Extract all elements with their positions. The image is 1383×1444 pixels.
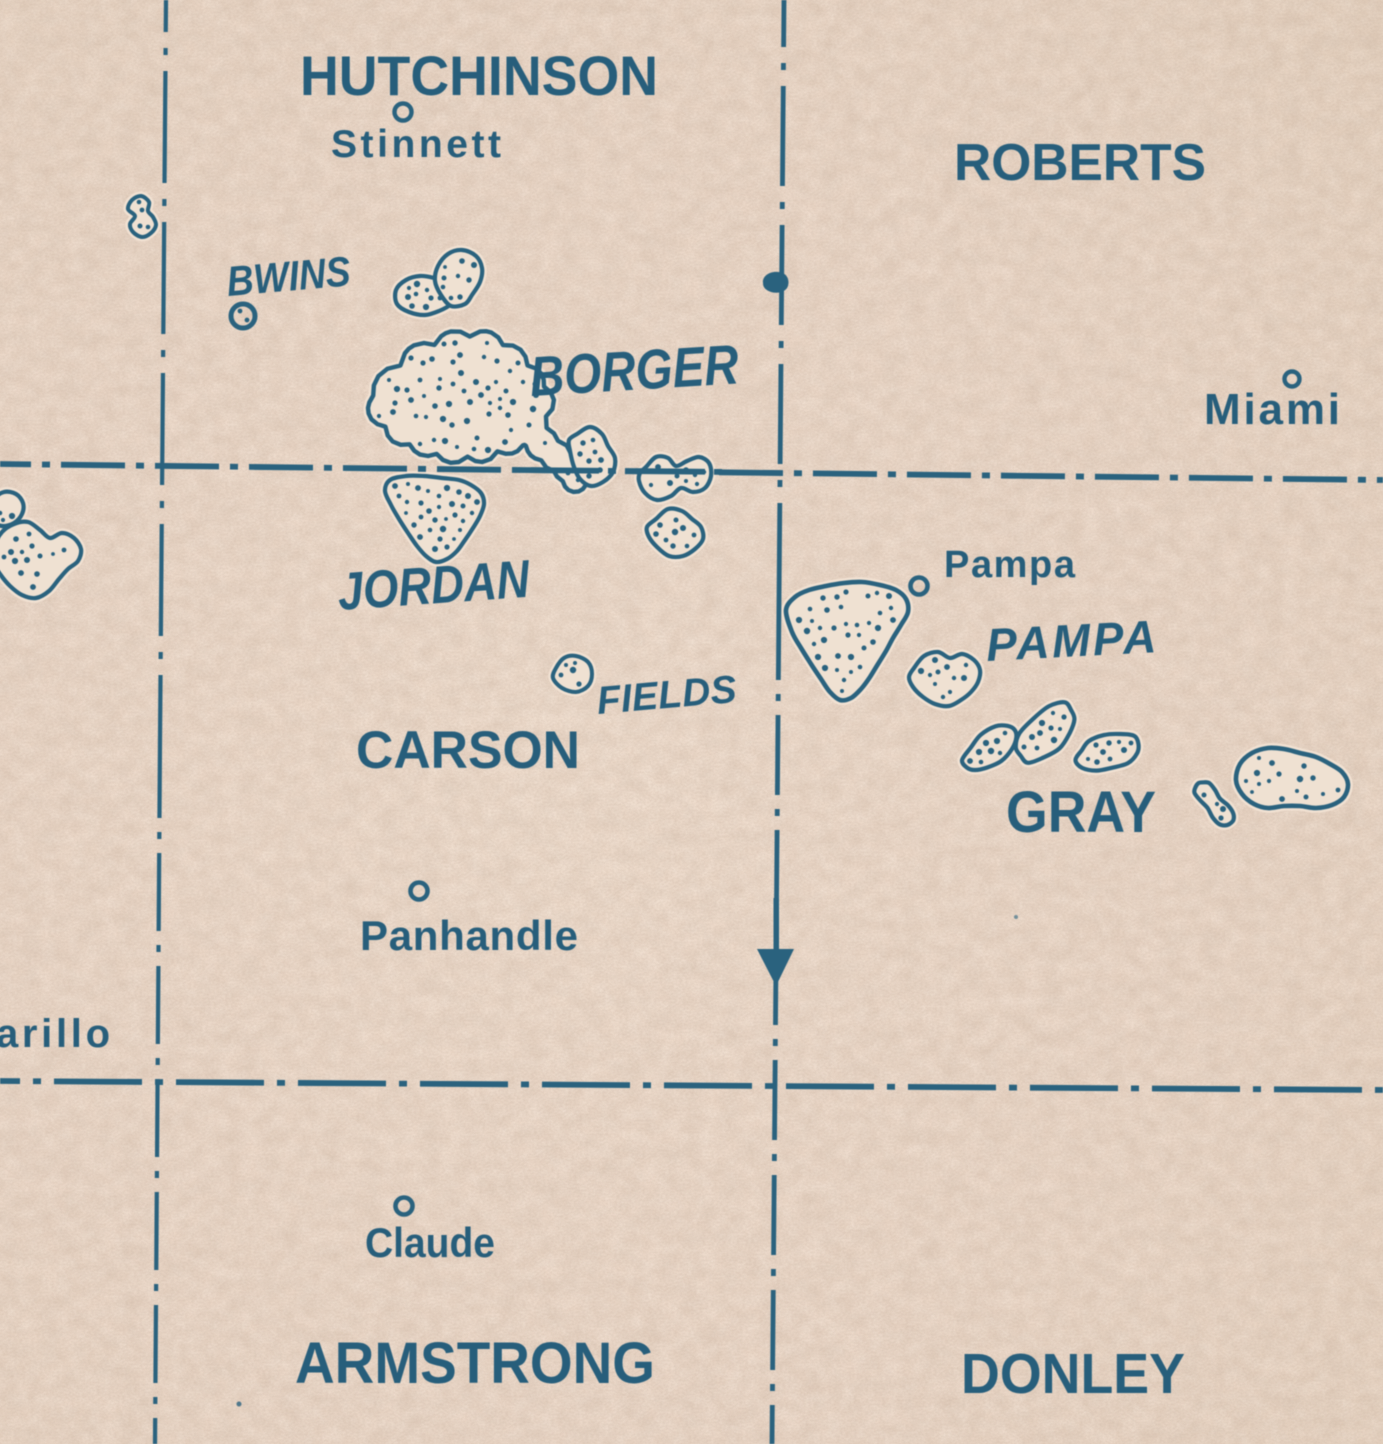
svg-text:PAMPA: PAMPA [985, 610, 1157, 671]
svg-text:arillo: arillo [0, 1012, 110, 1056]
svg-text:CARSON: CARSON [356, 721, 580, 780]
svg-text:Pampa: Pampa [944, 544, 1076, 586]
svg-text:BORGER: BORGER [528, 332, 741, 408]
svg-text:HUTCHINSON: HUTCHINSON [300, 44, 658, 107]
svg-text:DONLEY: DONLEY [961, 1342, 1185, 1406]
svg-text:ROBERTS: ROBERTS [954, 134, 1206, 192]
svg-text:ARMSTRONG: ARMSTRONG [295, 1331, 655, 1396]
svg-text:Miami: Miami [1204, 385, 1340, 434]
svg-text:Claude: Claude [365, 1219, 495, 1266]
svg-text:GRAY: GRAY [1006, 780, 1156, 845]
svg-text:Panhandle: Panhandle [360, 912, 578, 959]
